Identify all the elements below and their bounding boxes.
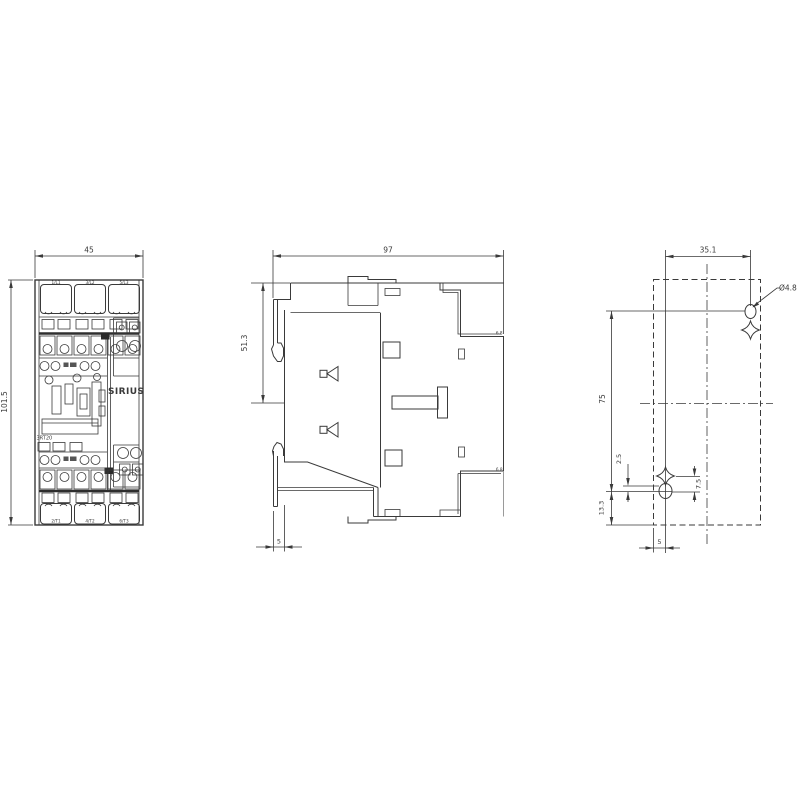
- front-bottom-terminals: 2/T1 4/T2 6/T3: [41, 504, 140, 525]
- drill-spacing-v-text: 75: [598, 394, 607, 404]
- drill-left-offset-text: 5: [657, 538, 661, 546]
- technical-drawing-svg: 1/L1 3/L2 5/L3: [0, 0, 800, 800]
- front-width-text: 45: [84, 246, 94, 255]
- front-top-terminals: 1/L1 3/L2 5/L3: [41, 280, 140, 314]
- drill-slot-length-dimension: 7.5: [672, 466, 703, 502]
- drill-slot-length-text: 7.5: [695, 479, 703, 489]
- drill-left-offset-dimension: 5: [639, 528, 680, 553]
- drill-pattern: Ø4.8 35.1 75 13.3 2.5: [598, 246, 798, 554]
- terminal-label-6T3: 6/T3: [119, 519, 129, 524]
- terminal-label-4T2: 4/T2: [85, 519, 95, 524]
- terminal-label-2T1: 2/T1: [51, 519, 61, 524]
- drawing-canvas: 1/L1 3/L2 5/L3: [0, 0, 800, 800]
- front-width-dimension: 45: [35, 246, 143, 279]
- side-upper-height-text: 51.3: [240, 334, 249, 351]
- front-bottom-screws: [40, 470, 140, 489]
- side-rail-text: 5: [277, 538, 281, 546]
- hole-diameter-text: Ø4.8: [779, 284, 797, 293]
- drill-slot-offset-text: 2.5: [615, 454, 623, 464]
- terminal-label-3L2: 3/L2: [85, 280, 94, 285]
- drill-spacing-h-dimension: 35.1: [666, 246, 751, 259]
- drill-bottom-offset-dimension: 13.3: [598, 492, 654, 525]
- front-view: 1/L1 3/L2 5/L3: [35, 280, 144, 525]
- drill-bottom-offset-text: 13.3: [598, 501, 606, 515]
- side-upper-height-dimension: 51.3: [240, 283, 290, 403]
- front-coil-block-top: [101, 318, 141, 376]
- side-funnel-top: [320, 367, 338, 382]
- drill-spacing-h-text: 35.1: [700, 246, 717, 255]
- front-top-screws: [40, 336, 140, 355]
- front-bottom-clamp-rects: [42, 493, 138, 503]
- front-top-clamp-rects: [42, 320, 138, 330]
- terminal-label-1L1: 1/L1: [51, 280, 60, 285]
- front-height-dimension: 101.5: [0, 280, 33, 525]
- model-label: 3RT20: [37, 436, 53, 442]
- side-funnel-bottom: [320, 423, 338, 438]
- front-mechanism: 3RT20: [37, 374, 106, 452]
- drill-slot-offset-dimension: 2.5: [615, 454, 659, 502]
- side-rear-top-mark: 6.8: [496, 331, 503, 336]
- hole-diameter-callout: Ø4.8: [753, 284, 798, 308]
- side-rear-bottom-mark: 6.8: [496, 467, 503, 472]
- side-rail-dimension: 5: [256, 505, 302, 552]
- front-height-text: 101.5: [0, 391, 9, 413]
- side-width-dimension: 97: [273, 246, 504, 335]
- side-width-text: 97: [383, 246, 393, 255]
- brand-label: SIRIUS: [108, 387, 144, 397]
- keyhole-top: [742, 305, 760, 340]
- terminal-label-5L3: 5/L3: [119, 280, 128, 285]
- side-view: 6.8 6.8: [272, 277, 505, 524]
- front-aux-row-bottom: [39, 452, 107, 468]
